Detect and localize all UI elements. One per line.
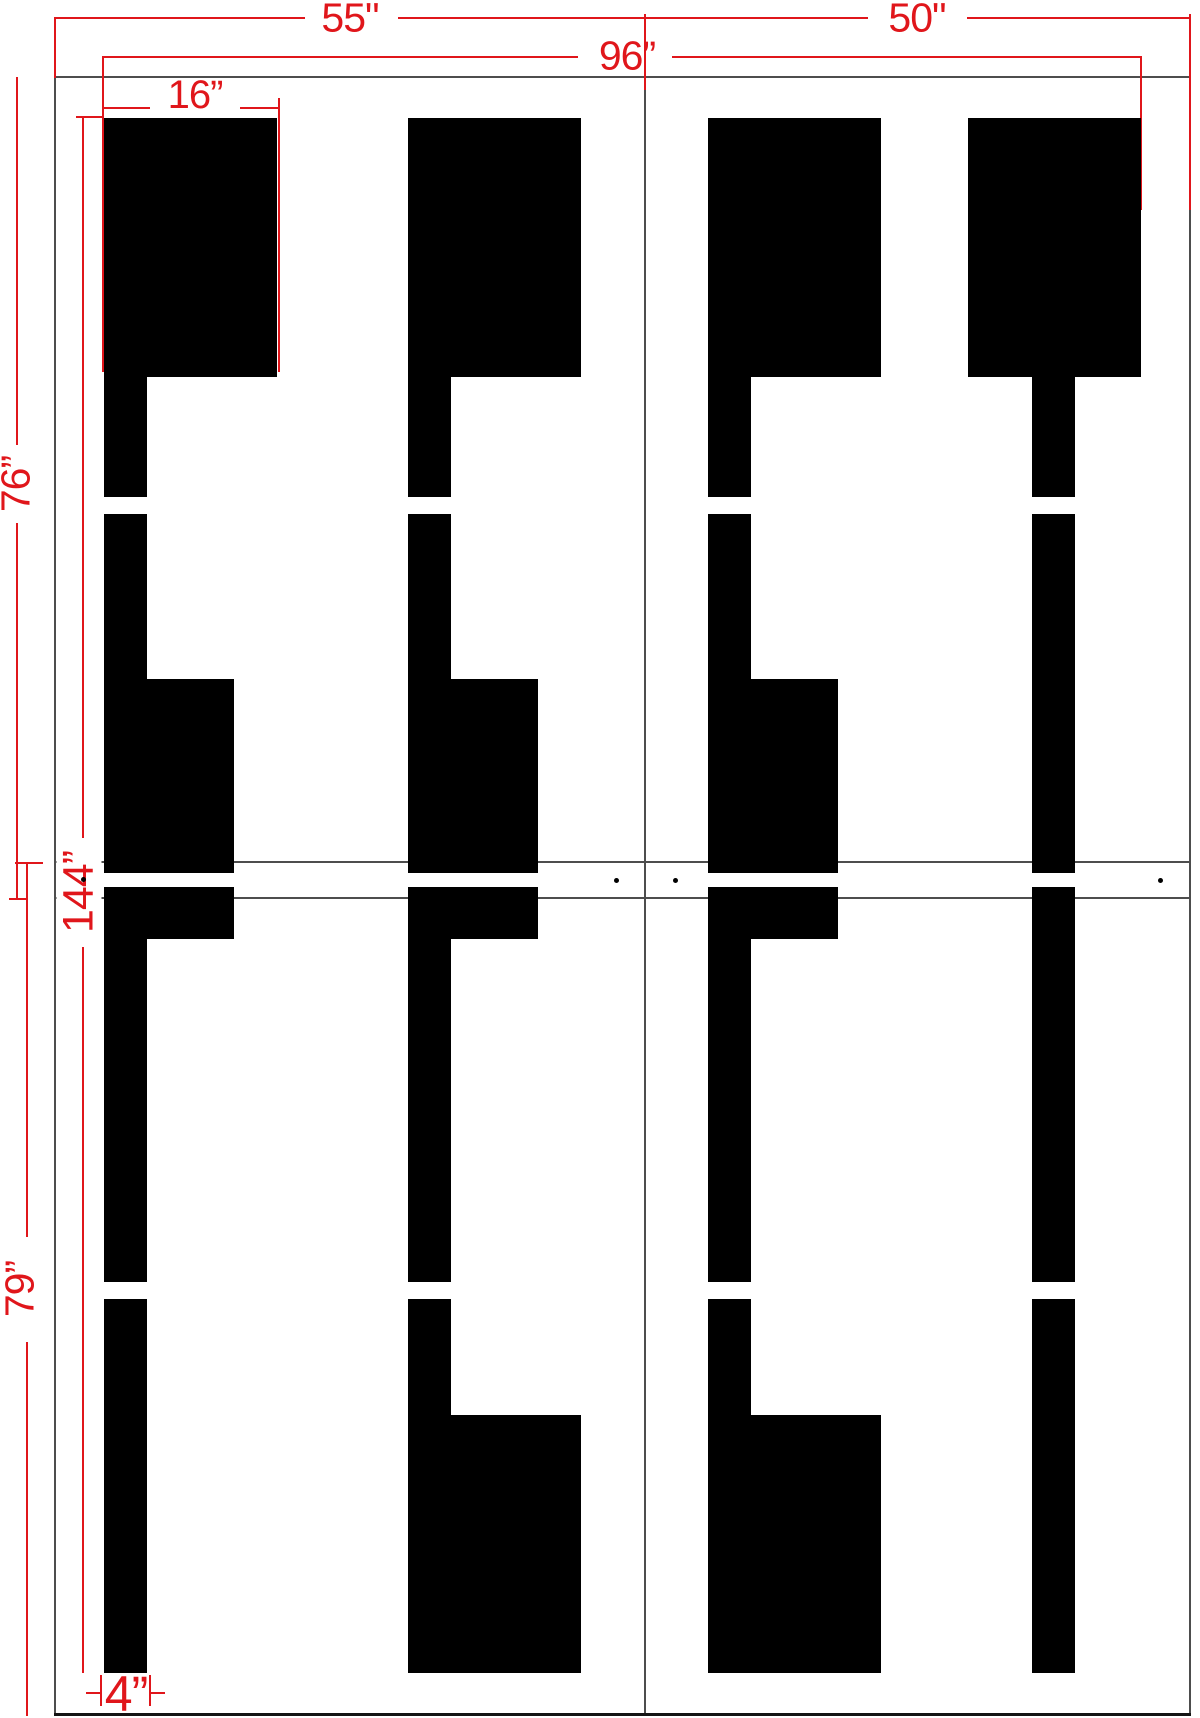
dimension-label-letter_top_width: 16” (168, 75, 223, 115)
letter-E2-stencil-part (708, 887, 838, 939)
alignment-dot (1158, 878, 1163, 883)
dimension-line (103, 56, 578, 58)
letter-E1-stencil-part (408, 887, 538, 939)
alignment-dot (81, 877, 86, 882)
dimension-line (1189, 14, 1191, 210)
sheet-bottom-edge-line (54, 1713, 1191, 1716)
letter-F-stencil-part (104, 377, 147, 497)
sheet-edge-line (1189, 76, 1191, 1716)
dimension-line (672, 56, 1141, 58)
letter-F-stencil-part (104, 514, 147, 679)
dimension-label-message_width: 96” (599, 36, 655, 77)
stencil-diagram: 55"50"96”16”76”144”79”4” (0, 0, 1200, 1718)
letter-F-stencil-part (104, 118, 277, 377)
dimension-line (398, 17, 645, 19)
letter-T-stencil-part (1032, 887, 1075, 1282)
dimension-line (278, 98, 280, 372)
dimension-line (104, 107, 150, 109)
letter-E2-stencil-part (708, 514, 751, 679)
dimension-line (240, 107, 279, 109)
dimension-label-letter_height: 144” (57, 848, 102, 936)
dimension-line (9, 898, 27, 900)
dimension-line (16, 523, 18, 899)
letter-E2-stencil-part (708, 1299, 751, 1415)
dimension-label-sheet_right_width: 50" (888, 0, 945, 39)
dimension-line (15, 862, 43, 864)
dimension-label-sheet_left_width: 55" (321, 0, 378, 39)
letter-E2-stencil-part (708, 939, 751, 1282)
letter-E1-stencil-part (408, 1415, 581, 1673)
dimension-line (149, 1675, 151, 1706)
dimension-line (16, 77, 18, 445)
letter-F-stencil-part (104, 1299, 147, 1673)
letter-E1-stencil-part (408, 1299, 451, 1415)
dimension-line (86, 1692, 100, 1694)
dimension-line (54, 17, 56, 78)
dimension-line (645, 17, 868, 19)
letter-T-stencil-part (968, 118, 1141, 377)
letter-F-stencil-part (104, 939, 147, 1282)
letter-E1-stencil-part (408, 679, 538, 873)
sheet-edge-line (644, 76, 646, 1716)
letter-T-stencil-part (1032, 377, 1075, 497)
dimension-label-bottom_sheet_height: 79” (0, 1258, 42, 1320)
dimension-label-top_sheet_height: 76” (0, 453, 38, 515)
letter-T-stencil-part (1032, 1299, 1075, 1673)
letter-E2-stencil-part (708, 377, 751, 497)
letter-T-stencil-part (1032, 514, 1075, 873)
letter-E1-stencil-part (408, 377, 451, 497)
dimension-line (26, 1342, 28, 1716)
dimension-line (54, 17, 305, 19)
dimension-line (26, 862, 28, 1237)
letter-E1-stencil-part (408, 514, 451, 679)
dimension-line (151, 1692, 165, 1694)
letter-E2-stencil-part (708, 1415, 881, 1673)
letter-E1-stencil-part (408, 118, 581, 377)
alignment-dot (673, 878, 678, 883)
alignment-dot (614, 878, 619, 883)
dimension-line (76, 116, 104, 118)
dimension-line (100, 1675, 102, 1706)
letter-E1-stencil-part (408, 939, 451, 1282)
letter-E2-stencil-part (708, 118, 881, 377)
dimension-line (82, 947, 84, 1673)
letter-F-stencil-part (104, 887, 234, 939)
letter-E2-stencil-part (708, 679, 838, 873)
dimension-label-letter_stroke_width: 4” (105, 1669, 147, 1718)
letter-F-stencil-part (104, 679, 234, 873)
dimension-line (82, 117, 84, 838)
dimension-line (967, 17, 1190, 19)
